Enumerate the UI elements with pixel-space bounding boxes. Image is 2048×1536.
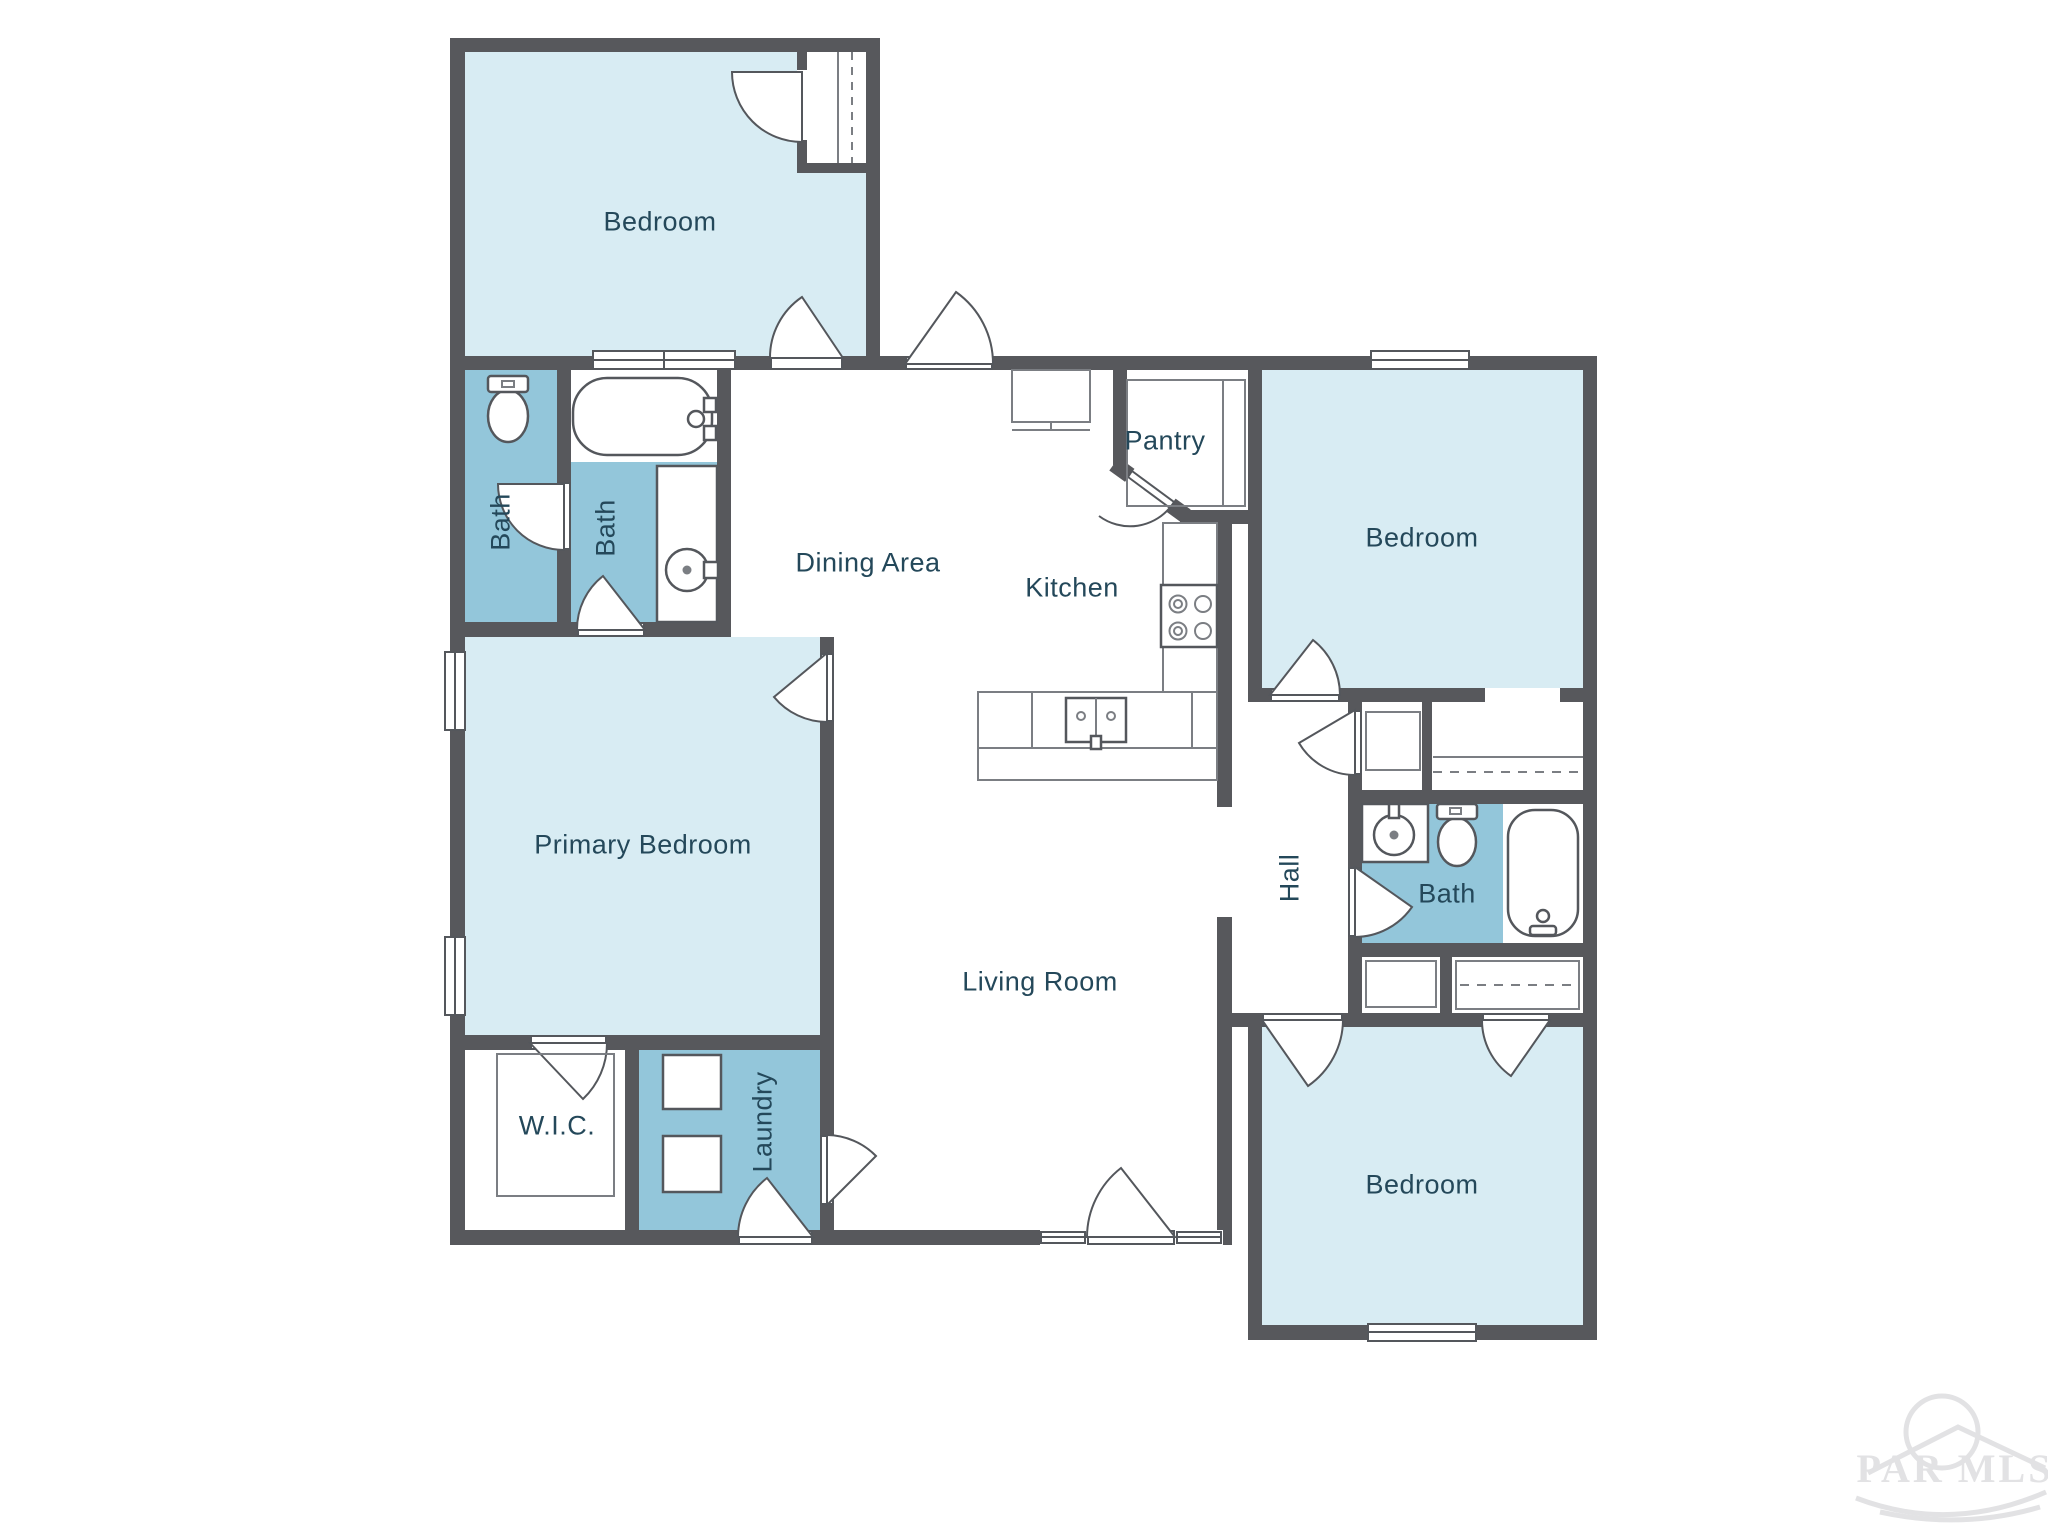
door-arc xyxy=(577,576,645,630)
door-arc xyxy=(1299,710,1355,775)
room-label-bedroom-top-right: Bedroom xyxy=(1365,523,1478,554)
pantry-corner-door xyxy=(1099,464,1186,526)
bathtub-icon xyxy=(573,378,716,455)
room-label-wic: W.I.C. xyxy=(519,1111,596,1142)
door-arc xyxy=(827,1135,876,1205)
door-arc xyxy=(1270,640,1340,695)
dryer-icon xyxy=(663,1136,721,1192)
room-label-bath-2: Bath xyxy=(591,499,622,557)
door-arc xyxy=(530,1043,607,1099)
floor-plan: PAR MLS Bedroom Bath Bath Dining Area Ki… xyxy=(0,0,2048,1536)
room-label-bedroom-bottom-right: Bedroom xyxy=(1365,1170,1478,1201)
room-label-hall: Hall xyxy=(1275,854,1306,903)
back-door-arc xyxy=(905,292,993,364)
entry-door-arc xyxy=(1087,1168,1175,1237)
room-label-pantry: Pantry xyxy=(1124,426,1205,457)
door-arc xyxy=(738,1178,813,1237)
door-arc xyxy=(732,72,802,142)
watermark-text: PAR MLS xyxy=(1857,1446,2048,1491)
door-swings xyxy=(498,72,1550,1237)
toilet-icon xyxy=(488,376,528,442)
stove-icon xyxy=(1161,585,1217,647)
room-label-kitchen: Kitchen xyxy=(1025,573,1119,604)
room-label-living-room: Living Room xyxy=(962,967,1118,998)
kitchen-sink-icon xyxy=(1066,698,1126,749)
room-label-dining: Dining Area xyxy=(795,548,940,579)
door-arc xyxy=(770,297,843,358)
room-label-bedroom-top-left: Bedroom xyxy=(603,207,716,238)
room-label-bath-1: Bath xyxy=(486,493,517,551)
plan-symbols: PAR MLS xyxy=(0,0,2048,1536)
door-arc xyxy=(1482,1020,1550,1076)
toilet-icon xyxy=(1437,804,1477,866)
door-arc xyxy=(1262,1020,1343,1086)
par-mls-watermark: PAR MLS xyxy=(1856,1396,2048,1520)
sink-icon xyxy=(1362,804,1428,862)
bathtub-icon xyxy=(1508,810,1578,936)
door-arc xyxy=(1355,867,1412,937)
room-label-bath-3: Bath xyxy=(1418,879,1476,910)
room-label-primary-bedroom: Primary Bedroom xyxy=(534,830,752,861)
washer-icon xyxy=(663,1055,721,1109)
sink-icon xyxy=(657,466,718,622)
door-arc xyxy=(774,653,827,722)
room-label-laundry: Laundry xyxy=(748,1071,779,1172)
